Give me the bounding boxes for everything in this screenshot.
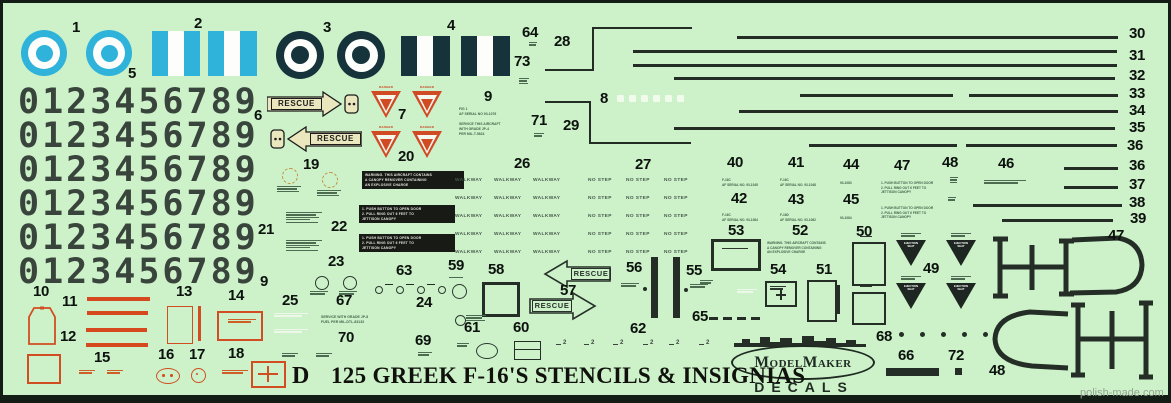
roundel-dark-2 <box>337 31 385 79</box>
micro-line <box>310 291 328 292</box>
micro-line <box>228 319 256 320</box>
serial-digits-row: 0123456789 <box>18 221 259 256</box>
micro-line <box>286 219 310 220</box>
micro-line <box>722 248 748 249</box>
service-jp4-stencil: SERVICE THIS AIRCRAFT WITH GRADE JP-4 PE… <box>459 122 501 137</box>
part-number-label: 57 <box>560 283 576 298</box>
walkway-stencil: WALKWAY <box>533 197 573 202</box>
canopy-frame-47-48 <box>985 228 1171 388</box>
part-number-label: 40 <box>727 155 743 170</box>
vent-circle-63 <box>438 286 446 294</box>
micro-stencil <box>466 315 486 322</box>
ejection-seat-label: EJECTION SEAT <box>950 285 972 292</box>
micro-line <box>316 353 332 354</box>
micro-line <box>700 282 711 283</box>
panel-54 <box>765 281 797 307</box>
micro-line <box>286 217 319 218</box>
part-number-label: 51 <box>816 262 832 277</box>
micro-stencil <box>274 313 308 318</box>
micro-line <box>737 291 753 292</box>
micro-line <box>770 288 783 289</box>
jettison-canopy-stencil: 1. PUSH BUTTON TO OPEN DOOR 2. PULL RING… <box>881 181 933 195</box>
micro-line <box>274 329 308 330</box>
micro-stencil <box>860 236 872 238</box>
micro-line <box>466 320 485 321</box>
orange-line-stencil-13 <box>198 306 201 341</box>
micro-stencil <box>274 329 308 334</box>
first-aid-stencil-18 <box>251 361 286 388</box>
panel-58 <box>482 282 520 317</box>
micro-line <box>418 352 432 353</box>
micro-stencil <box>286 240 322 252</box>
triangle-core <box>421 99 433 111</box>
part-number-label: 53 <box>728 223 744 238</box>
dash-marker <box>427 284 435 285</box>
micro-line <box>274 331 302 332</box>
part-number-label: 4 <box>447 18 455 33</box>
part-number-label: 17 <box>189 347 205 362</box>
walkway-stencil: WALKWAY <box>455 215 495 220</box>
micro-line <box>529 44 536 45</box>
part-number-label: 26 <box>514 156 530 171</box>
dash-marker <box>643 344 648 345</box>
micro-stencil <box>228 319 256 324</box>
red-stripe-12 <box>86 343 148 347</box>
micro-line <box>950 182 957 183</box>
micro-line <box>984 182 1018 183</box>
no-step-stencil: NO STEP <box>664 215 704 220</box>
orange-square-stencil <box>27 354 61 384</box>
rescue-label: RESCUE <box>310 133 361 145</box>
no-step-stencil: NO STEP <box>664 197 704 202</box>
vent-circle-23 <box>315 276 329 290</box>
micro-line <box>339 291 357 292</box>
orange-circle-stencil-17 <box>191 368 206 383</box>
micro-line <box>984 180 1026 181</box>
dash-marker <box>406 284 414 285</box>
vent-circle-63 <box>417 286 425 294</box>
micro-line <box>951 278 965 279</box>
micro-line <box>519 78 529 79</box>
part-number-label: 45 <box>843 192 859 207</box>
micro-line <box>316 355 329 356</box>
panel-line <box>1064 186 1118 189</box>
fin-flash-dark-1 <box>401 36 450 76</box>
micro-line <box>519 80 527 81</box>
rescue-label: RESCUE <box>532 300 572 312</box>
part-number-label: 47 <box>1108 228 1124 243</box>
tiny-2-stencil: 2 <box>620 340 623 346</box>
warning-canopy-stencil: WARNING. THIS AIRCRAFT CONTAINS A CANOPY… <box>767 241 826 255</box>
serial-digits-row: 0123456789 <box>18 187 259 222</box>
part-number-label: 32 <box>1129 68 1145 83</box>
intake-bar-56 <box>651 257 658 318</box>
micro-line <box>534 135 542 136</box>
micro-line <box>277 188 297 189</box>
danger-label: DANGER <box>371 126 401 129</box>
dot-marker-68 <box>920 332 925 337</box>
micro-stencil <box>317 190 341 197</box>
part-number-label: 18 <box>228 346 244 361</box>
micro-line <box>222 372 243 373</box>
part-number-label: 23 <box>328 254 344 269</box>
serial-digits-row: 0123456789 <box>18 119 259 154</box>
micro-line <box>901 235 915 236</box>
part-number-label: 38 <box>1129 195 1145 210</box>
vent-circle-23 <box>343 276 357 290</box>
micro-stencil <box>222 370 248 375</box>
dash-marker <box>613 344 618 345</box>
bar-stencil-51 <box>836 285 840 314</box>
sheet-edge-left <box>0 0 3 403</box>
rescue-arrow-left: RESCUE <box>270 126 362 152</box>
decal-sheet: RESCUE RESCUE RESCUE RESCUE WARNING. THI… <box>0 0 1171 403</box>
micro-line <box>222 370 248 371</box>
micro-line <box>519 83 528 84</box>
micro-line <box>466 315 486 316</box>
micro-line <box>107 370 123 371</box>
walkway-stencil: WALKWAY <box>494 179 534 184</box>
triangle-core <box>380 99 392 111</box>
vent-circle-59 <box>452 284 467 299</box>
micro-stencil <box>339 291 357 296</box>
part-number-label: 24 <box>416 295 432 310</box>
micro-line <box>317 195 339 196</box>
micro-stencil <box>948 197 956 202</box>
part-number-label: 37 <box>1129 177 1145 192</box>
micro-stencil <box>286 212 322 224</box>
micro-line <box>107 372 120 373</box>
canopy-sill-line-28 <box>545 69 594 71</box>
micro-stencil <box>722 248 748 250</box>
micro-stencil <box>951 233 971 238</box>
panel-line <box>739 110 1118 113</box>
micro-line <box>286 245 319 246</box>
serial-digits-row: 0123456789 <box>18 153 259 188</box>
fig-serial-stencil: FIG 1 AF SERIAL NO 93-1076 <box>459 107 496 117</box>
panel-line <box>633 50 1117 53</box>
micro-stencil <box>901 233 921 238</box>
part-number-label: 15 <box>94 350 110 365</box>
sheet-title: 125 GREEK F-16'S STENCILS & INSIGNIAS <box>331 364 805 387</box>
micro-line <box>418 354 429 355</box>
white-marker-8 <box>665 95 672 102</box>
dot-marker-68 <box>983 332 988 337</box>
no-step-stencil: NO STEP <box>588 179 628 184</box>
micro-stencil <box>984 180 1026 185</box>
rescue-arrow-right: RESCUE <box>267 91 359 117</box>
part-number-label: 61 <box>464 320 480 335</box>
micro-line <box>700 280 713 281</box>
micro-line <box>951 233 971 234</box>
micro-stencil <box>282 353 298 358</box>
micro-line <box>466 317 482 318</box>
panel-line <box>674 127 1115 130</box>
red-stripe-11 <box>87 311 148 315</box>
part-number-label: 52 <box>792 223 808 238</box>
panel-line <box>737 36 1118 39</box>
part-number-label: 42 <box>731 191 747 206</box>
part-number-label: 29 <box>563 118 579 133</box>
micro-line <box>770 286 786 287</box>
white-marker-8 <box>641 95 648 102</box>
tiny-2-stencil: 2 <box>591 340 594 346</box>
micro-line <box>277 186 301 187</box>
danger-label: DANGER <box>412 86 442 89</box>
part-number-label: 47 <box>894 158 910 173</box>
micro-line <box>317 192 337 193</box>
part-number-label: 27 <box>635 157 651 172</box>
panel-stencil-60 <box>514 341 541 360</box>
intake-bar-55 <box>673 257 680 318</box>
dot-marker-68 <box>899 332 904 337</box>
service-jp8-stencil: SERVICE WITH GRADE JP-8 FUEL PER MIL-DTL… <box>321 315 368 325</box>
micro-line <box>286 240 322 241</box>
micro-stencil <box>107 370 123 375</box>
white-marker-8 <box>677 95 684 102</box>
serial-stencil-43: F-16D AF SERIAL NO. 93-1082 <box>780 213 816 222</box>
no-step-stencil: NO STEP <box>588 215 628 220</box>
walkway-stencil: WALKWAY <box>494 215 534 220</box>
placard-53 <box>711 239 761 271</box>
panel-line <box>973 204 1122 207</box>
rescue-label: RESCUE <box>271 98 322 110</box>
panel-50-upper <box>852 242 886 286</box>
walkway-stencil: WALKWAY <box>533 251 573 256</box>
ejection-seat-triangle: EJECTION SEAT <box>896 276 926 316</box>
dot-marker-68 <box>962 332 967 337</box>
vent-circle-63 <box>375 286 383 294</box>
part-number-label: 54 <box>770 262 786 277</box>
sheet-edge-top <box>0 0 1171 3</box>
tiny-2-stencil: 2 <box>676 340 679 346</box>
sheet-letter: D <box>292 364 309 388</box>
micro-line <box>621 285 636 286</box>
jettison-canopy-block: 1. PUSH BUTTON TO OPEN DOOR 2. PULL RING… <box>359 234 455 252</box>
micro-stencil <box>700 280 713 285</box>
part-number-label: 44 <box>843 157 859 172</box>
dash-marker-65 <box>723 317 732 320</box>
micro-stencil <box>277 186 301 193</box>
panel-line <box>809 144 957 147</box>
serial-digits-row: 0123456789 <box>18 85 259 120</box>
triangle-core <box>380 139 392 151</box>
part-number-label: 64 <box>522 25 538 40</box>
ejection-seat-label: EJECTION SEAT <box>900 285 922 292</box>
part-number-label: 69 <box>415 333 431 348</box>
micro-stencil <box>519 78 529 85</box>
part-number-label: 73 <box>514 54 530 69</box>
micro-line <box>951 235 965 236</box>
micro-line <box>860 286 872 287</box>
micro-stencil <box>534 133 544 138</box>
part-number-label: 71 <box>531 113 547 128</box>
micro-line <box>310 293 325 294</box>
micro-line <box>901 233 921 234</box>
no-step-stencil: NO STEP <box>626 179 666 184</box>
part-number-label: 63 <box>396 263 412 278</box>
canopy-sill-line-29 <box>589 142 691 144</box>
no-step-stencil: NO STEP <box>664 179 704 184</box>
orange-door-stencil-13 <box>167 306 193 344</box>
panel-50-lower <box>852 292 886 325</box>
no-step-stencil: NO STEP <box>626 215 666 220</box>
micro-line <box>457 343 469 344</box>
micro-line <box>286 212 322 213</box>
danger-triangle: DANGER <box>412 126 442 164</box>
panel-line <box>674 77 1115 80</box>
red-stripe-11 <box>87 297 150 301</box>
fin-flash-blue-2 <box>208 31 257 76</box>
micro-line <box>286 214 316 215</box>
micro-line <box>534 133 544 134</box>
micro-line <box>737 289 757 290</box>
micro-line <box>277 191 299 192</box>
micro-line <box>901 276 921 277</box>
vent-circle-63 <box>396 286 404 294</box>
panel-line <box>633 64 1117 67</box>
dot-marker <box>643 287 647 291</box>
code-stencil-45: 93-1084 <box>840 216 852 221</box>
walkway-stencil: WALKWAY <box>455 197 495 202</box>
part-number-label: 56 <box>626 260 642 275</box>
part-number-label: 8 <box>600 91 608 106</box>
micro-line <box>274 313 308 314</box>
part-number-label: 35 <box>1129 120 1145 135</box>
micro-line <box>79 370 95 371</box>
dash-marker <box>669 344 674 345</box>
walkway-stencil: WALKWAY <box>494 233 534 238</box>
part-number-label: 65 <box>692 309 708 324</box>
part-number-label: 36 <box>1129 158 1145 173</box>
part-number-label: 31 <box>1129 48 1145 63</box>
micro-stencil <box>860 286 872 288</box>
roundel-blue-1 <box>21 30 67 76</box>
part-number-label: 5 <box>128 66 136 81</box>
micro-line <box>339 293 354 294</box>
white-marker-8 <box>629 95 636 102</box>
no-step-stencil: NO STEP <box>626 233 666 238</box>
vent-circle-19 <box>322 172 338 188</box>
micro-line <box>228 321 251 322</box>
panel-51 <box>807 280 837 322</box>
walkway-stencil: WALKWAY <box>455 233 495 238</box>
part-number-label: 3 <box>323 20 331 35</box>
no-step-stencil: NO STEP <box>626 251 666 256</box>
dash-marker-65 <box>751 317 760 320</box>
no-step-stencil: NO STEP <box>588 251 628 256</box>
part-number-label: 34 <box>1129 103 1145 118</box>
tiny-2-stencil: 2 <box>563 340 566 346</box>
warning-canopy-block: WARNING. THIS AIRCRAFT CONTAINS A CANOPY… <box>362 171 464 189</box>
part-number-label: 66 <box>898 348 914 363</box>
dash-marker <box>556 344 561 345</box>
tiny-2-stencil: 2 <box>706 340 709 346</box>
no-step-stencil: NO STEP <box>588 197 628 202</box>
dash-marker-65 <box>709 317 718 320</box>
micro-line <box>317 190 341 191</box>
micro-stencil <box>79 370 95 375</box>
part-number-label: 59 <box>448 258 464 273</box>
micro-stencil <box>950 177 958 184</box>
dash-marker <box>584 344 589 345</box>
micro-stencil <box>457 343 469 348</box>
part-number-label: 33 <box>1129 86 1145 101</box>
micro-line <box>449 277 463 278</box>
part-number-label: 25 <box>282 293 298 308</box>
part-number-label: 68 <box>876 329 892 344</box>
serial-stencil-41: F-16C AF SERIAL NO. 93-1048 <box>780 178 816 187</box>
walkway-stencil: WALKWAY <box>494 197 534 202</box>
micro-line <box>274 315 302 316</box>
danger-label: DANGER <box>371 86 401 89</box>
danger-label: DANGER <box>412 126 442 129</box>
white-marker-8 <box>617 95 624 102</box>
part-number-label: 12 <box>60 329 76 344</box>
danger-triangle: DANGER <box>412 86 442 124</box>
danger-triangle: DANGER <box>371 126 401 164</box>
micro-line <box>860 236 872 237</box>
white-marker-8 <box>653 95 660 102</box>
canopy-sill-line-28 <box>592 27 594 71</box>
micro-line <box>282 353 298 354</box>
micro-line <box>529 42 537 43</box>
micro-stencil <box>901 276 921 281</box>
canopy-sill-line-29 <box>589 101 591 144</box>
red-stripe-12 <box>86 328 147 332</box>
micro-line <box>948 197 956 198</box>
no-step-stencil: NO STEP <box>626 197 666 202</box>
micro-line <box>951 276 971 277</box>
serial-digits-row: 0123456789 <box>18 255 259 290</box>
serial-stencil-42: F-16C AF SERIAL NO. 93-1084 <box>722 213 758 222</box>
roundel-dark-1 <box>276 31 324 79</box>
part-number-label: 21 <box>258 222 274 237</box>
canopy-outline-stencil-10 <box>26 305 58 347</box>
orange-oval-stencil-16 <box>156 368 180 384</box>
part-number-label: 48 <box>989 363 1005 378</box>
micro-line <box>286 242 316 243</box>
walkway-stencil: WALKWAY <box>455 179 495 184</box>
micro-line <box>286 222 318 223</box>
micro-stencil <box>310 291 328 296</box>
micro-line <box>948 199 955 200</box>
serial-stencil-40: F-16C AF SERIAL NO. 93-1045 <box>722 178 758 187</box>
part-number-label: 36 <box>1127 138 1143 153</box>
part-number-label: 2 <box>194 16 202 31</box>
panel-line <box>966 144 1117 147</box>
part-number-label: 22 <box>331 219 347 234</box>
micro-stencil <box>737 289 757 294</box>
part-number-label: 1 <box>72 20 80 35</box>
micro-stencil <box>418 352 432 357</box>
panel-line <box>800 94 953 97</box>
ejection-seat-label: EJECTION SEAT <box>950 242 972 249</box>
micro-stencil <box>770 286 786 291</box>
dash-marker <box>699 344 704 345</box>
part-number-label: 58 <box>488 262 504 277</box>
watermark: polish-made.com <box>1080 388 1164 399</box>
micro-line <box>690 286 705 287</box>
part-number-label: 60 <box>513 320 529 335</box>
panel-line <box>1002 219 1113 222</box>
micro-line <box>457 345 467 346</box>
part-number-label: 43 <box>788 192 804 207</box>
part-number-label: 72 <box>948 348 964 363</box>
dot-marker-68 <box>941 332 946 337</box>
oval-stencil-61 <box>476 343 498 359</box>
micro-stencil <box>316 353 332 358</box>
